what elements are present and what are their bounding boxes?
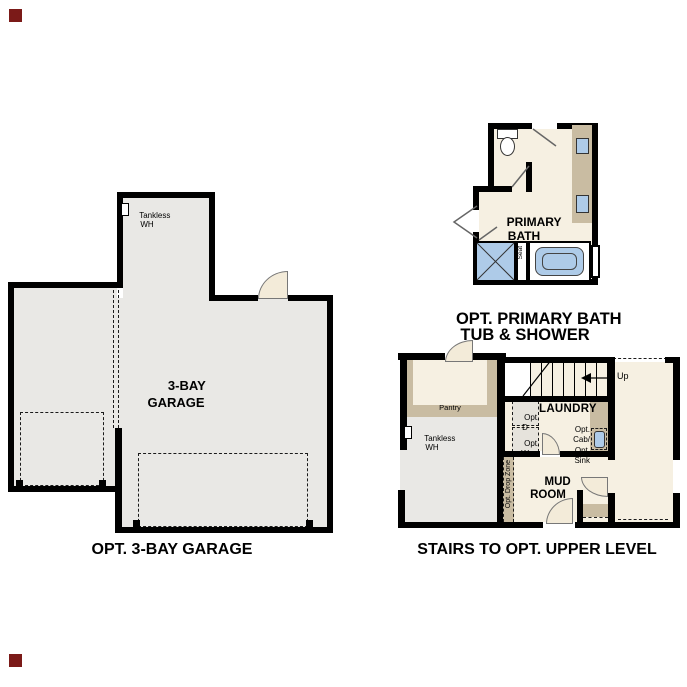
garage-main-jamb-left (133, 520, 140, 527)
pantry-label: Pantry (439, 404, 461, 413)
garage-narrow-right-wall (209, 192, 215, 301)
optional-right-wall-upper (673, 363, 680, 460)
stairwell-top-wall (503, 357, 613, 363)
vanity-sink-1 (576, 138, 589, 154)
opening-fill (608, 460, 615, 493)
bath-left-wall-upper (473, 186, 479, 210)
mud-left-wall (497, 457, 503, 528)
drop-zone-label: Opt. Drop Zone (505, 460, 512, 508)
toilet-room-left-wall (488, 123, 494, 192)
garage-wing-left-wall (8, 282, 14, 492)
optional-area-bottom-dashed (618, 519, 668, 520)
stairs-bottom-wall-b (575, 522, 680, 528)
stair-tread (552, 363, 553, 396)
tub-deck-bump (591, 245, 600, 278)
mud-room-bench (583, 504, 608, 517)
stairs-right-wall-upper (608, 357, 615, 460)
stairwell-bottom-wall (497, 396, 613, 402)
optional-area-floor (615, 362, 673, 522)
garage-left-lower-wall (115, 428, 122, 533)
laundry-left-wall (497, 396, 505, 457)
garage-wing-door-dashed (20, 412, 104, 486)
stair-tread (596, 363, 597, 396)
bench-left-wall (577, 490, 583, 522)
garage-room-label: 3-BAYGARAGE (146, 360, 206, 428)
stair-tread (574, 363, 575, 396)
opt-sink-basin (594, 431, 605, 448)
stairs-tankless-label: TanklessWH (411, 425, 453, 462)
garage-main-door-dashed (138, 453, 308, 527)
floorplan-sheet: TanklessWH 3-BAYGARAGE OPT. 3-BAY GARAGE (0, 0, 687, 687)
garage-junction-dashed-2 (118, 290, 119, 428)
garage-main-jamb-right (306, 520, 313, 527)
garage-caption: OPT. 3-BAY GARAGE (92, 541, 253, 559)
garage-wing-jamb-left (16, 480, 23, 488)
vanity-sink-2 (576, 195, 589, 213)
stairs-bottom-wall-a (398, 522, 543, 528)
garage-wide-top-wall-a (215, 295, 258, 301)
garage-wing-top-wall (8, 282, 123, 288)
garage-narrow-top-wall (117, 192, 215, 198)
garage-door-swing (258, 271, 288, 299)
garage-right-wall (327, 295, 333, 533)
stair-tread (530, 363, 531, 396)
garage-wing-jamb-right (99, 480, 106, 488)
stair-tread (541, 363, 542, 396)
corner-mark-top-left (9, 9, 22, 22)
up-label: Up (617, 371, 629, 381)
garage-junction-dashed-1 (113, 290, 114, 428)
stair-tread (585, 363, 586, 396)
bench-dashed-line (583, 517, 608, 518)
garage-tankless-label: TanklessWH (126, 202, 168, 239)
pantry-stair-divider (497, 353, 505, 398)
mud-room-label: MUDROOM (525, 463, 570, 515)
toilet-room-right-wall (526, 162, 532, 192)
pantry-floor (413, 360, 487, 405)
toilet-bowl (500, 137, 515, 156)
stair-tread (563, 363, 564, 396)
optional-right-wall-lower (673, 493, 680, 528)
optional-area-top-dashed (613, 358, 667, 359)
stairs-caption: STAIRS TO OPT. UPPER LEVEL (417, 541, 656, 559)
garage-bottom-wall (115, 527, 333, 533)
bath-room-label: PRIMARYBATH (487, 201, 562, 257)
corner-mark-bottom-left (9, 654, 22, 667)
